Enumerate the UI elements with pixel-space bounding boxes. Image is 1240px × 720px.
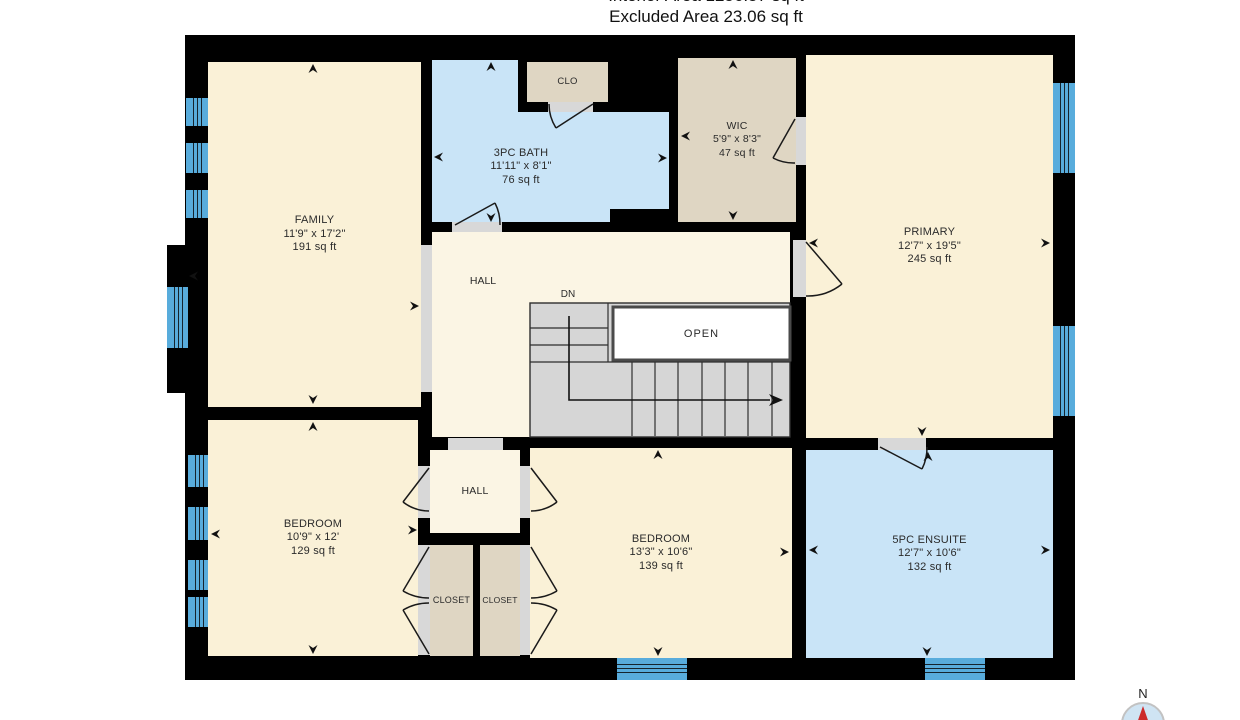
window xyxy=(617,658,687,680)
room-dims: 10'9" x 12' xyxy=(284,531,342,545)
room-area: 139 sq ft xyxy=(630,560,693,574)
stairs-down-label: DN xyxy=(552,287,584,301)
stairwell-open-label: OPEN xyxy=(613,307,790,360)
room-name: BEDROOM xyxy=(284,518,342,532)
door-threshold-closet-left xyxy=(418,545,430,655)
opening-family-hall xyxy=(421,245,432,392)
room-name: BEDROOM xyxy=(630,533,693,547)
room-dims: 11'9" x 17'2" xyxy=(283,228,345,242)
window xyxy=(1053,326,1075,416)
opening-hall xyxy=(448,438,503,450)
room-clo: CLO xyxy=(527,62,608,102)
door-threshold-bedroom-mid xyxy=(520,466,530,518)
room-name: CLOSET xyxy=(482,594,517,608)
room-name: HALL xyxy=(461,485,488,499)
window xyxy=(186,143,208,173)
room-area: 76 sq ft xyxy=(490,174,551,188)
compass-needle-icon xyxy=(1136,706,1150,720)
window xyxy=(188,560,208,590)
room-name: FAMILY xyxy=(283,214,345,228)
room-wic: WIC 5'9" x 8'3" 47 sq ft xyxy=(678,58,796,222)
room-hall-lower: HALL xyxy=(430,450,520,533)
room-area: 47 sq ft xyxy=(713,147,761,161)
room-name: 3PC BATH xyxy=(490,147,551,161)
room-bedroom-mid: BEDROOM 13'3" x 10'6" 139 sq ft xyxy=(530,448,792,658)
window xyxy=(188,455,208,487)
room-name: WIC xyxy=(713,120,761,134)
room-bedroom-left: BEDROOM 10'9" x 12' 129 sq ft xyxy=(208,420,418,656)
window xyxy=(186,190,208,218)
door-threshold-bedroom-left xyxy=(418,466,430,518)
room-area: 132 sq ft xyxy=(892,561,966,575)
room-dims: 12'7" x 19'5" xyxy=(898,240,961,254)
room-name: CLO xyxy=(557,75,577,89)
room-dims: 13'3" x 10'6" xyxy=(630,546,693,560)
door-threshold-closet-right xyxy=(520,545,530,655)
room-area: 245 sq ft xyxy=(898,253,961,267)
door-threshold-ensuite xyxy=(878,438,926,450)
window xyxy=(188,507,208,540)
floor-plan-page: Interior Area 1256.57 sq ft Excluded Are… xyxy=(0,0,1240,720)
room-bath-extension xyxy=(610,110,669,209)
room-dims: 12'7" x 10'6" xyxy=(892,547,966,561)
door-threshold-clo xyxy=(548,102,593,112)
area-summary: Interior Area 1256.57 sq ft Excluded Are… xyxy=(556,0,856,27)
hall-upper-label: HALL xyxy=(453,273,513,289)
room-area: 129 sq ft xyxy=(284,545,342,559)
room-ensuite: 5PC ENSUITE 12'7" x 10'6" 132 sq ft xyxy=(806,450,1053,658)
room-name: CLOSET xyxy=(433,594,470,608)
door-threshold-primary xyxy=(793,240,806,297)
room-name: 5PC ENSUITE xyxy=(892,534,966,548)
excluded-area-text: Excluded Area 23.06 sq ft xyxy=(556,6,856,27)
window xyxy=(188,597,208,627)
window xyxy=(925,658,985,680)
door-threshold-bath xyxy=(452,222,502,232)
room-area: 191 sq ft xyxy=(283,241,345,255)
door-threshold-wic xyxy=(796,117,806,165)
window xyxy=(186,98,208,126)
bay-window xyxy=(167,287,188,348)
room-closet-right: CLOSET xyxy=(480,545,520,656)
compass-north-label: N xyxy=(1130,686,1156,701)
room-name: PRIMARY xyxy=(898,226,961,240)
room-dims: 5'9" x 8'3" xyxy=(713,133,761,147)
room-family: FAMILY 11'9" x 17'2" 191 sq ft xyxy=(208,62,421,407)
room-primary: PRIMARY 12'7" x 19'5" 245 sq ft xyxy=(806,55,1053,438)
room-dims: 11'11" x 8'1" xyxy=(490,160,551,174)
room-closet-left: CLOSET xyxy=(430,545,473,656)
window xyxy=(1053,83,1075,173)
